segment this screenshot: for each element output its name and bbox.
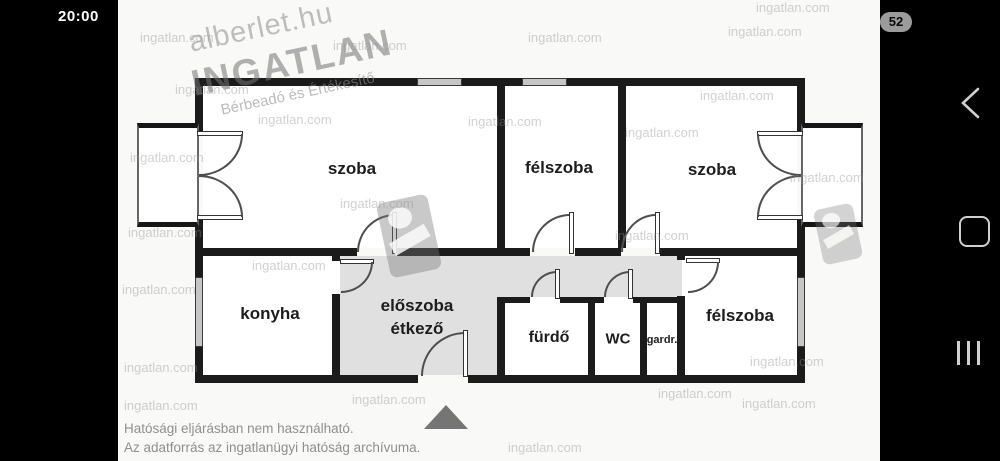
balcony-left: [137, 123, 199, 227]
window-felszoba-top: [522, 78, 567, 86]
door-szoba-left-leaf: [392, 212, 397, 254]
wall-bottom-right: [468, 375, 805, 383]
watermark-text: ingatlan.com: [756, 0, 830, 15]
balcony-right: [801, 123, 863, 227]
wall-mid-1: [195, 248, 357, 256]
watermark-text: ingatlan.com: [333, 38, 407, 53]
wall-mid-3: [575, 248, 621, 256]
wall-left-3: [195, 347, 203, 383]
label-halfroom-top: félszoba: [525, 158, 593, 178]
wall-top: [195, 78, 805, 86]
window-kitchen-left: [195, 277, 203, 347]
wall-bath-left: [497, 297, 505, 375]
watermark-text: ingatlan.com: [658, 386, 732, 401]
label-room-top-left: szoba: [328, 159, 376, 179]
label-room-top-right: szoba: [688, 160, 736, 180]
wall-halfroom-left: [677, 296, 685, 375]
watermark-text: ingatlan.com: [508, 440, 582, 455]
door-entry-leaf: [463, 330, 468, 377]
watermark-text: ingatlan.com: [124, 360, 198, 375]
wall-right-3: [797, 347, 805, 383]
watermark-text: ingatlan.com: [728, 24, 802, 39]
wall-kitchen-stub: [332, 256, 340, 261]
back-chevron-icon[interactable]: [956, 86, 986, 120]
watermark-text: ingatlan.com: [122, 282, 196, 297]
wall-bottom-left: [195, 375, 418, 383]
floorplan-photo[interactable]: szoba félszoba szoba konyha előszoba étk…: [118, 0, 880, 461]
label-bathroom: fürdő: [529, 329, 570, 347]
window-halfroom-right: [797, 277, 805, 347]
window-szoba-top: [417, 78, 462, 86]
door-wc-leaf: [628, 269, 633, 299]
watermark-text: ingatlan.com: [742, 396, 816, 411]
north-arrow-triangle: [424, 405, 468, 429]
wall-halfroom-stub: [677, 256, 685, 260]
label-halfroom-bottom: félszoba: [706, 306, 774, 326]
home-icon[interactable]: [959, 216, 990, 247]
door-felszoba-top-leaf: [569, 212, 574, 254]
watermark-alberlet: alberlet.hu: [186, 0, 336, 60]
recents-icon[interactable]: [957, 341, 985, 365]
label-wardrobe: gardr.: [647, 334, 678, 346]
disclaimer-line-2: Az adatforrás az ingatlanügyi hatóság ar…: [124, 440, 420, 455]
wall-bath-top-1: [497, 297, 530, 303]
wall-kitchen: [332, 294, 340, 375]
door-szoba-right-leaf: [655, 212, 660, 254]
watermark-text: ingatlan.com: [124, 398, 198, 413]
wall-szoba-felszoba: [497, 86, 505, 248]
label-kitchen: konyha: [240, 304, 300, 324]
wall-wc-left: [588, 297, 595, 375]
watermark-text: ingatlan.com: [140, 30, 214, 45]
battery-indicator: 52: [880, 12, 912, 32]
disclaimer-line-1: Hatósági eljárásban nem használható.: [124, 421, 354, 436]
wall-mid-2: [397, 248, 530, 256]
watermark-text: ingatlan.com: [352, 392, 426, 407]
watermark-text: ingatlan.com: [528, 30, 602, 45]
wall-mid-4: [660, 248, 805, 256]
status-bar-time: 20:00: [58, 8, 99, 25]
wall-felszoba-szoba: [618, 86, 626, 248]
label-hallway-dining: előszoba étkező: [381, 294, 454, 340]
wall-wc-top-1: [595, 297, 604, 303]
wall-bath-top-2: [560, 297, 588, 303]
door-bathroom-leaf: [555, 269, 560, 299]
label-wc: WC: [606, 331, 631, 348]
watermark-text: ingatlan.com: [128, 225, 202, 240]
